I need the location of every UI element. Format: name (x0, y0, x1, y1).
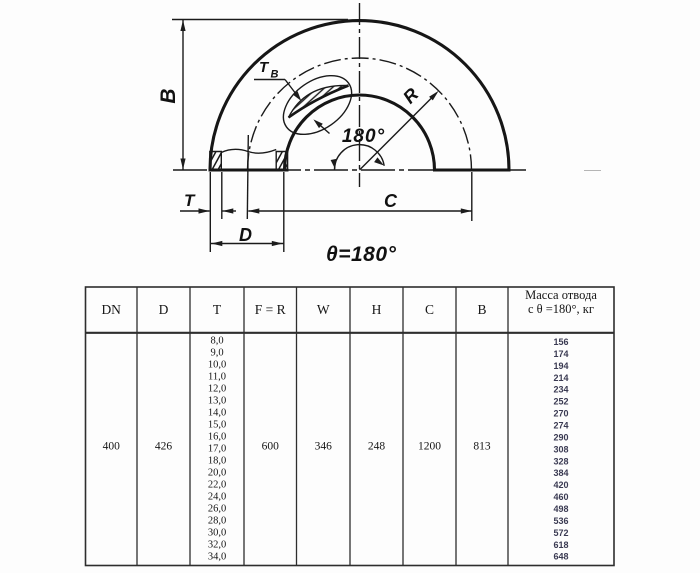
svg-text:28,0: 28,0 (208, 516, 226, 527)
svg-text:400: 400 (103, 441, 121, 453)
svg-text:T: T (184, 191, 196, 210)
svg-text:8,0: 8,0 (210, 336, 223, 347)
svg-text:H: H (372, 302, 382, 317)
svg-text:15,0: 15,0 (208, 420, 226, 431)
svg-text:536: 536 (553, 516, 568, 526)
svg-text:460: 460 (553, 492, 568, 502)
svg-text:30,0: 30,0 (208, 528, 226, 539)
svg-text:B: B (157, 88, 180, 103)
svg-text:D: D (159, 302, 169, 317)
svg-text:26,0: 26,0 (208, 504, 226, 515)
svg-text:13,0: 13,0 (208, 396, 226, 407)
svg-text:18,0: 18,0 (208, 456, 226, 467)
svg-text:B: B (271, 69, 279, 81)
svg-text:328: 328 (553, 456, 568, 466)
svg-text:B: B (477, 302, 486, 317)
svg-text:24,0: 24,0 (208, 492, 226, 503)
svg-text:426: 426 (155, 441, 173, 453)
svg-text:813: 813 (473, 441, 491, 453)
svg-text:346: 346 (315, 441, 333, 453)
svg-text:156: 156 (553, 337, 568, 347)
svg-text:648: 648 (553, 552, 568, 562)
svg-text:618: 618 (553, 540, 568, 550)
svg-text:16,0: 16,0 (208, 432, 226, 443)
svg-text:572: 572 (553, 528, 568, 538)
svg-text:C: C (425, 302, 434, 317)
svg-text:34,0: 34,0 (208, 552, 226, 563)
svg-text:11,0: 11,0 (208, 372, 226, 383)
svg-text:DN: DN (101, 302, 121, 317)
svg-text:10,0: 10,0 (208, 360, 226, 371)
svg-text:420: 420 (553, 480, 568, 490)
svg-text:214: 214 (553, 373, 568, 383)
svg-text:W: W (317, 302, 330, 317)
svg-text:D: D (239, 225, 252, 245)
svg-text:14,0: 14,0 (208, 408, 226, 419)
svg-text:22,0: 22,0 (208, 480, 226, 491)
svg-text:F = R: F = R (255, 302, 286, 317)
svg-text:с θ =180°, кг: с θ =180°, кг (528, 302, 594, 316)
svg-text:C: C (384, 191, 398, 211)
svg-text:θ=180°: θ=180° (326, 243, 397, 266)
svg-text:9,0: 9,0 (210, 348, 223, 359)
svg-text:180°: 180° (342, 126, 385, 147)
svg-text:Масса отвода: Масса отвода (525, 288, 597, 302)
svg-text:174: 174 (553, 349, 568, 359)
svg-text:290: 290 (553, 432, 568, 442)
svg-text:384: 384 (553, 468, 568, 478)
svg-text:32,0: 32,0 (208, 540, 226, 551)
svg-text:T: T (213, 302, 222, 317)
svg-text:274: 274 (553, 421, 568, 431)
svg-text:270: 270 (553, 409, 568, 419)
svg-text:234: 234 (553, 385, 568, 395)
svg-text:17,0: 17,0 (208, 444, 226, 455)
svg-text:252: 252 (553, 397, 568, 407)
svg-text:248: 248 (368, 441, 386, 453)
svg-text:194: 194 (553, 361, 568, 371)
svg-text:498: 498 (553, 504, 568, 514)
svg-text:308: 308 (553, 444, 568, 454)
svg-text:1200: 1200 (418, 441, 441, 453)
svg-text:12,0: 12,0 (208, 384, 226, 395)
svg-text:600: 600 (262, 441, 280, 453)
svg-text:20,0: 20,0 (208, 468, 226, 479)
